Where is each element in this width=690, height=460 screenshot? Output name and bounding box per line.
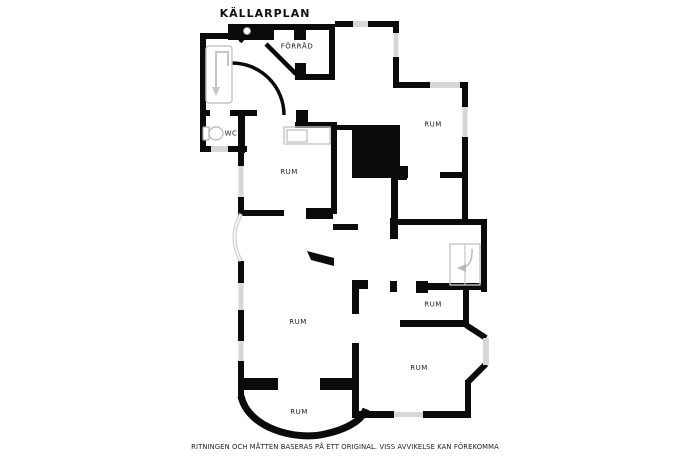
room-label-wc: WC: [225, 130, 238, 138]
solid-core: [352, 125, 400, 178]
room-label-rum-bottom-right: RUM: [410, 364, 428, 372]
door-arc: [232, 63, 284, 115]
staircase-turn-arrowhead-icon: [457, 264, 466, 272]
toilet-tank-icon: [203, 127, 209, 140]
sink-basin-icon: [287, 130, 307, 142]
wall-segment: [238, 261, 244, 283]
wall-segment: [390, 218, 398, 239]
wall-segment: [465, 380, 471, 413]
room-label-rum-bottom: RUM: [290, 408, 308, 416]
disclaimer-text: RITNINGEN OCH MÅTTEN BASERAS PÅ ETT ORIG…: [191, 442, 499, 451]
stairs-down-arrowhead-icon: [212, 87, 220, 96]
room-label-forrad: FÖRRÅD: [281, 42, 313, 51]
wall-segment: [333, 224, 358, 230]
wall-segment: [400, 320, 468, 327]
room-label-rum-by-stairs: RUM: [424, 301, 442, 309]
window-segment: [394, 33, 399, 57]
wall-segment: [329, 24, 335, 80]
wall-segment: [462, 137, 468, 178]
wall-segment: [294, 24, 306, 40]
wall-segment: [228, 146, 247, 152]
window-segment: [239, 166, 244, 197]
wall-segment: [481, 219, 487, 292]
stairs-down-arrow-icon: [216, 52, 228, 90]
wall-segment: [393, 21, 399, 33]
window-segment: [353, 21, 368, 27]
wall-segment: [200, 146, 211, 152]
wall-segment: [352, 287, 359, 314]
room-label-rum-top-right: RUM: [424, 121, 442, 129]
wall-segment: [440, 172, 468, 178]
wall-segment: [462, 82, 468, 107]
wall-segment: [238, 310, 244, 341]
window-segment: [463, 107, 468, 137]
wall-segment: [243, 378, 278, 390]
wall-segment: [423, 411, 471, 418]
wall-segment: [416, 283, 487, 290]
wall-segment: [296, 110, 308, 124]
door-leaf: [307, 251, 334, 266]
room-label-rum-large: RUM: [289, 318, 307, 326]
wall-segment: [396, 82, 430, 88]
wall-segment: [306, 208, 333, 219]
wall-segment: [238, 152, 244, 166]
page-title: KÄLLARPLAN: [220, 6, 311, 20]
window-segment: [239, 283, 244, 310]
wall-segment: [390, 281, 397, 292]
window-segment: [430, 82, 460, 88]
wall-segment: [396, 219, 487, 225]
doors: [232, 27, 334, 266]
boiler-icon: [244, 28, 251, 35]
wall-segment: [466, 325, 486, 338]
wall-segment: [200, 110, 210, 116]
wall-segment: [462, 178, 468, 222]
window-segment: [483, 338, 489, 365]
wall-segment: [335, 21, 353, 27]
wall-segment: [238, 210, 284, 216]
wall-segment: [303, 74, 333, 80]
floorplan-page: KÄLLARPLAN: [0, 0, 690, 460]
floorplan-svg: KÄLLARPLAN: [0, 0, 690, 460]
wall-segment: [238, 361, 244, 399]
window-segment: [394, 412, 423, 417]
window-segment: [211, 146, 228, 152]
wall-segment: [306, 24, 333, 30]
window-segment: [239, 341, 244, 361]
wall-segment: [468, 364, 486, 382]
wall-segment: [391, 178, 398, 219]
wall-segment: [331, 125, 337, 214]
wall-segment: [352, 343, 359, 418]
solid-core-block: [352, 125, 408, 178]
wall-segment: [320, 378, 353, 390]
room-label-rum-center: RUM: [280, 168, 298, 176]
solid-core-foot: [396, 166, 408, 178]
wall-segment: [368, 21, 396, 27]
toilet-icon: [209, 127, 223, 140]
